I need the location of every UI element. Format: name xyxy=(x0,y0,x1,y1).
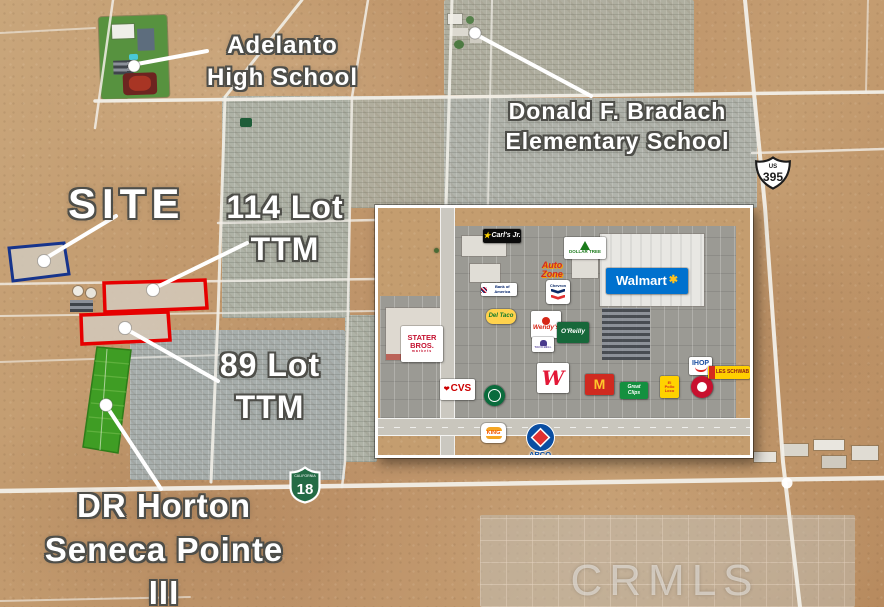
aerial-map: ★ Carl's Jr. DOLLAR TREE AutoZone Walmar… xyxy=(0,0,884,607)
label-114-lot-ttm: 114 Lot TTM xyxy=(215,186,355,270)
leader-dot xyxy=(38,255,51,268)
label-site: SITE xyxy=(68,176,184,231)
leader-horton xyxy=(107,407,161,489)
leader-dot xyxy=(147,284,160,297)
leader-dot xyxy=(469,27,481,39)
leader-dot xyxy=(119,322,132,335)
leader-dot xyxy=(128,60,140,72)
leader-dot xyxy=(100,399,113,412)
leader-bradach xyxy=(477,35,591,96)
label-dr-horton: DR Horton Seneca Pointe III xyxy=(21,484,307,607)
label-bradach-elementary: Donald F. Bradach Elementary School xyxy=(470,96,765,157)
label-adelanto-high-school: Adelanto High School xyxy=(185,30,380,93)
crmls-watermark: CRMLS xyxy=(555,556,775,606)
label-89-lot-ttm: 89 Lot TTM xyxy=(202,344,338,428)
